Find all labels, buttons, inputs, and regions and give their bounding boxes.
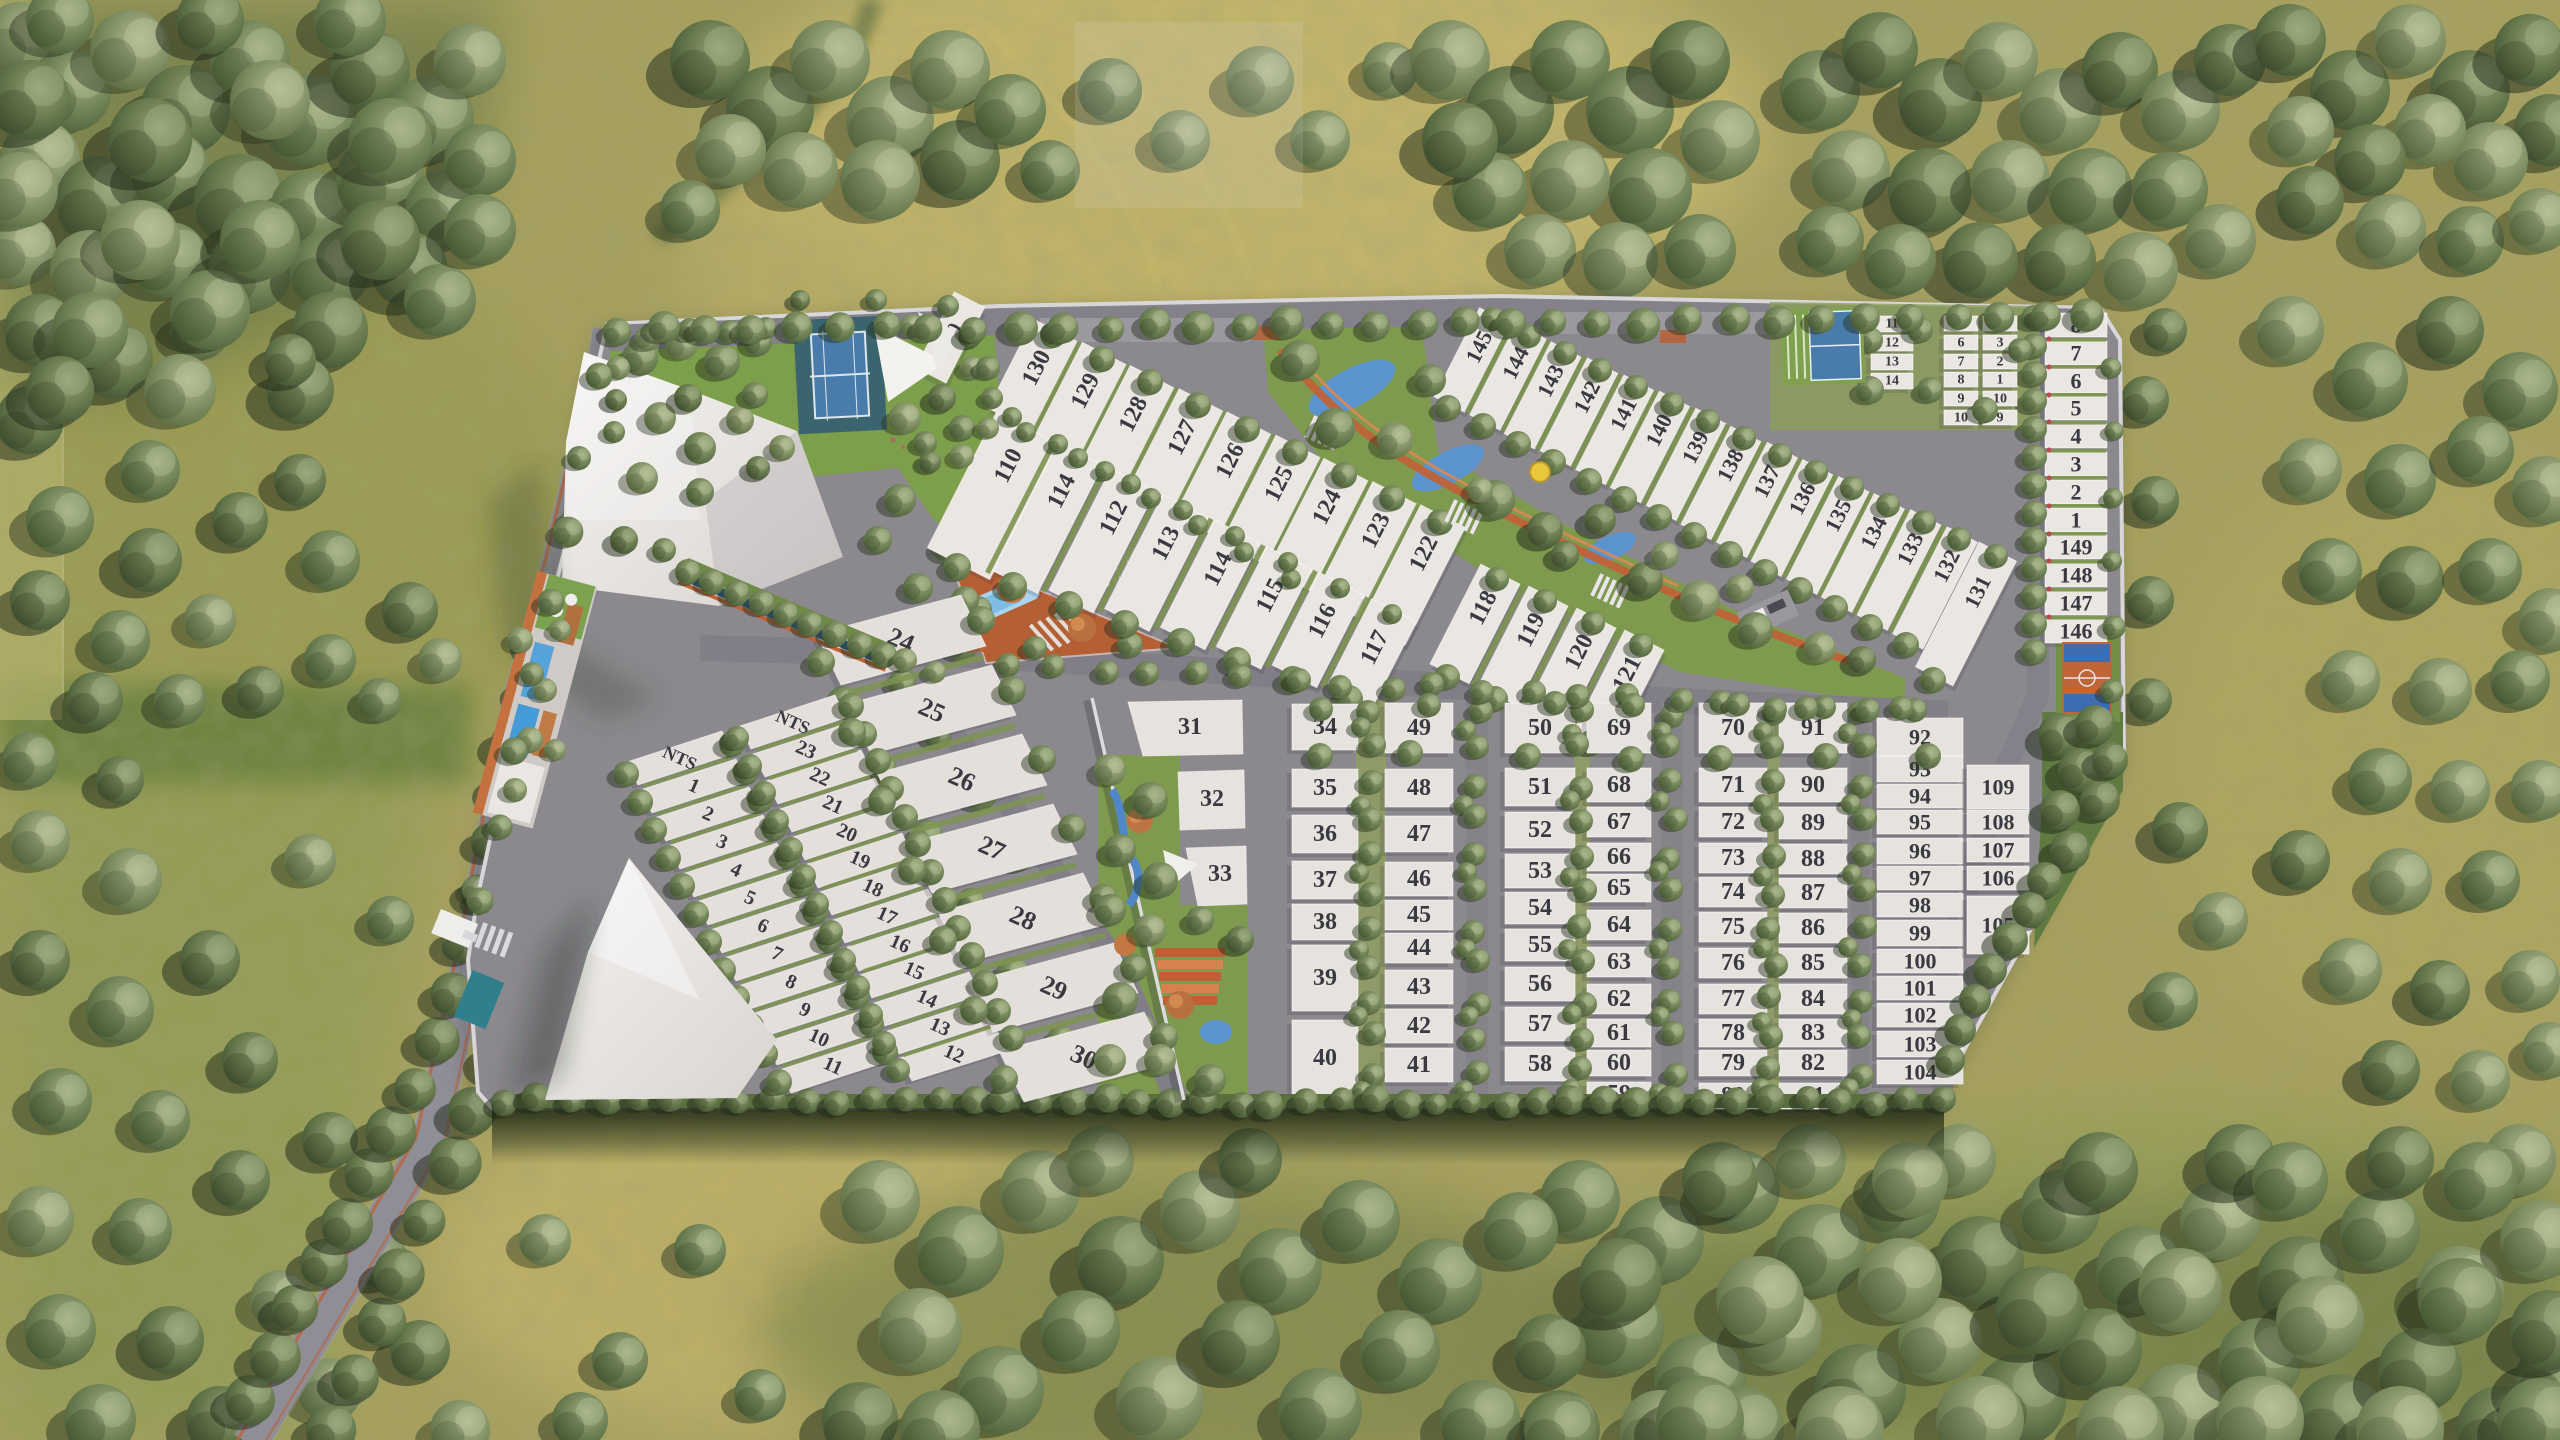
svg-text:66: 66 bbox=[1607, 844, 1631, 870]
svg-text:2: 2 bbox=[1997, 355, 2004, 370]
svg-text:100: 100 bbox=[1904, 949, 1937, 974]
svg-text:3: 3 bbox=[1997, 336, 2004, 351]
svg-text:35: 35 bbox=[1313, 775, 1337, 801]
svg-text:53: 53 bbox=[1528, 858, 1552, 884]
svg-text:97: 97 bbox=[1909, 866, 1931, 891]
svg-text:75: 75 bbox=[1721, 914, 1745, 940]
svg-text:39: 39 bbox=[1313, 965, 1337, 991]
svg-text:106: 106 bbox=[1982, 866, 2015, 891]
svg-text:56: 56 bbox=[1528, 971, 1552, 997]
svg-text:38: 38 bbox=[1313, 909, 1337, 935]
svg-text:58: 58 bbox=[1528, 1051, 1552, 1077]
svg-text:8: 8 bbox=[1958, 373, 1965, 388]
svg-text:146: 146 bbox=[2060, 619, 2093, 644]
svg-text:65: 65 bbox=[1607, 875, 1631, 901]
svg-text:84: 84 bbox=[1801, 986, 1825, 1012]
svg-text:82: 82 bbox=[1801, 1050, 1825, 1076]
svg-text:5: 5 bbox=[2071, 396, 2082, 421]
svg-text:54: 54 bbox=[1528, 895, 1552, 921]
svg-text:98: 98 bbox=[1909, 893, 1931, 918]
svg-text:89: 89 bbox=[1801, 810, 1825, 836]
svg-text:72: 72 bbox=[1721, 809, 1745, 835]
svg-text:48: 48 bbox=[1407, 775, 1431, 801]
svg-text:33: 33 bbox=[1208, 861, 1232, 887]
svg-text:108: 108 bbox=[1982, 810, 2015, 835]
svg-text:67: 67 bbox=[1607, 809, 1631, 835]
svg-text:50: 50 bbox=[1528, 715, 1552, 741]
svg-text:51: 51 bbox=[1528, 774, 1552, 800]
svg-text:62: 62 bbox=[1607, 986, 1631, 1012]
svg-text:12: 12 bbox=[1885, 336, 1899, 351]
svg-text:107: 107 bbox=[1982, 838, 2015, 863]
svg-text:32: 32 bbox=[1200, 786, 1224, 812]
svg-text:73: 73 bbox=[1721, 845, 1745, 871]
svg-text:13: 13 bbox=[1885, 355, 1899, 370]
svg-text:4: 4 bbox=[2071, 424, 2082, 449]
svg-text:6: 6 bbox=[2071, 369, 2082, 394]
svg-text:36: 36 bbox=[1313, 821, 1337, 847]
svg-text:14: 14 bbox=[1885, 374, 1899, 389]
svg-text:77: 77 bbox=[1721, 986, 1745, 1012]
svg-text:87: 87 bbox=[1801, 880, 1825, 906]
svg-text:6: 6 bbox=[1958, 336, 1965, 351]
svg-text:85: 85 bbox=[1801, 950, 1825, 976]
svg-text:99: 99 bbox=[1909, 921, 1931, 946]
svg-text:2: 2 bbox=[2071, 480, 2082, 505]
svg-text:46: 46 bbox=[1407, 866, 1431, 892]
svg-text:9: 9 bbox=[1958, 392, 1965, 407]
svg-text:103: 103 bbox=[1904, 1032, 1937, 1057]
svg-text:55: 55 bbox=[1528, 932, 1552, 958]
svg-text:3: 3 bbox=[2071, 452, 2082, 477]
svg-text:147: 147 bbox=[2060, 591, 2093, 616]
svg-text:102: 102 bbox=[1904, 1003, 1937, 1028]
svg-text:74: 74 bbox=[1721, 879, 1745, 905]
svg-text:47: 47 bbox=[1407, 821, 1431, 847]
svg-text:49: 49 bbox=[1407, 715, 1431, 741]
svg-text:57: 57 bbox=[1528, 1011, 1552, 1037]
svg-text:1: 1 bbox=[1997, 373, 2004, 388]
svg-text:45: 45 bbox=[1407, 902, 1431, 928]
svg-text:71: 71 bbox=[1721, 772, 1745, 798]
svg-text:149: 149 bbox=[2060, 535, 2093, 560]
svg-text:40: 40 bbox=[1313, 1045, 1337, 1071]
svg-text:37: 37 bbox=[1313, 867, 1337, 893]
svg-text:7: 7 bbox=[1958, 355, 1965, 370]
svg-text:88: 88 bbox=[1801, 846, 1825, 872]
svg-text:61: 61 bbox=[1607, 1020, 1631, 1046]
svg-text:68: 68 bbox=[1607, 772, 1631, 798]
svg-text:79: 79 bbox=[1721, 1050, 1745, 1076]
svg-text:96: 96 bbox=[1909, 839, 1931, 864]
svg-text:42: 42 bbox=[1407, 1013, 1431, 1039]
svg-text:83: 83 bbox=[1801, 1020, 1825, 1046]
svg-text:94: 94 bbox=[1909, 784, 1931, 809]
svg-text:41: 41 bbox=[1407, 1052, 1431, 1078]
svg-text:86: 86 bbox=[1801, 915, 1825, 941]
svg-text:148: 148 bbox=[2060, 563, 2093, 588]
svg-text:95: 95 bbox=[1909, 810, 1931, 835]
svg-text:1: 1 bbox=[2071, 508, 2082, 533]
svg-text:70: 70 bbox=[1721, 715, 1745, 741]
svg-text:43: 43 bbox=[1407, 974, 1431, 1000]
svg-text:60: 60 bbox=[1607, 1050, 1631, 1076]
svg-text:69: 69 bbox=[1607, 715, 1631, 741]
svg-text:64: 64 bbox=[1607, 912, 1631, 938]
svg-text:101: 101 bbox=[1904, 976, 1937, 1001]
svg-text:7: 7 bbox=[2071, 341, 2082, 366]
svg-text:76: 76 bbox=[1721, 950, 1745, 976]
svg-text:78: 78 bbox=[1721, 1020, 1745, 1046]
svg-text:90: 90 bbox=[1801, 772, 1825, 798]
svg-text:63: 63 bbox=[1607, 949, 1631, 975]
svg-text:109: 109 bbox=[1982, 775, 2015, 800]
svg-text:52: 52 bbox=[1528, 817, 1552, 843]
svg-text:31: 31 bbox=[1178, 714, 1202, 740]
svg-text:44: 44 bbox=[1407, 935, 1431, 961]
